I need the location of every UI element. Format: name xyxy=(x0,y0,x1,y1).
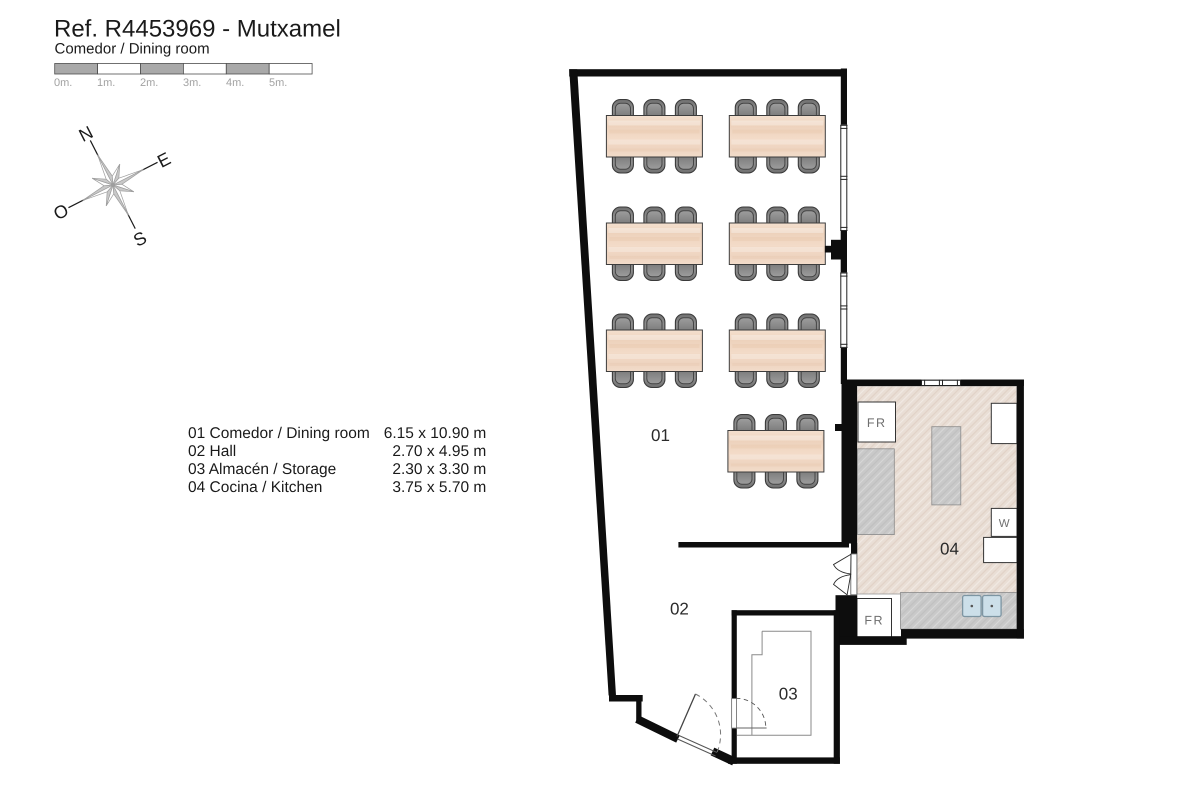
svg-text:Comedor / Dining room: Comedor / Dining room xyxy=(55,41,210,58)
svg-text:03 Almacén / Storage: 03 Almacén / Storage xyxy=(188,461,336,478)
svg-text:04 Cocina / Kitchen: 04 Cocina / Kitchen xyxy=(188,479,322,496)
svg-text:2.70 x 4.95 m: 2.70 x 4.95 m xyxy=(392,443,486,460)
svg-text:03: 03 xyxy=(779,685,798,704)
svg-text:6.15 x 10.90 m: 6.15 x 10.90 m xyxy=(384,425,487,442)
svg-text:0m.: 0m. xyxy=(54,77,72,89)
svg-text:FR: FR xyxy=(867,416,887,430)
svg-text:5m.: 5m. xyxy=(269,77,287,89)
svg-text:Ref. R4453969 - Mutxamel: Ref. R4453969 - Mutxamel xyxy=(54,16,341,43)
svg-text:02: 02 xyxy=(670,599,689,618)
svg-text:W: W xyxy=(999,518,1010,530)
svg-text:01: 01 xyxy=(651,426,670,445)
svg-text:2m.: 2m. xyxy=(140,77,158,89)
svg-text:FR: FR xyxy=(864,614,884,628)
svg-text:04: 04 xyxy=(940,540,959,559)
svg-text:3.75 x 5.70 m: 3.75 x 5.70 m xyxy=(392,479,486,496)
svg-text:4m.: 4m. xyxy=(226,77,244,89)
svg-text:01 Comedor / Dining room: 01 Comedor / Dining room xyxy=(188,425,370,442)
svg-text:2.30 x 3.30 m: 2.30 x 3.30 m xyxy=(392,461,486,478)
svg-text:1m.: 1m. xyxy=(97,77,115,89)
svg-text:02 Hall: 02 Hall xyxy=(188,443,236,460)
svg-text:3m.: 3m. xyxy=(183,77,201,89)
